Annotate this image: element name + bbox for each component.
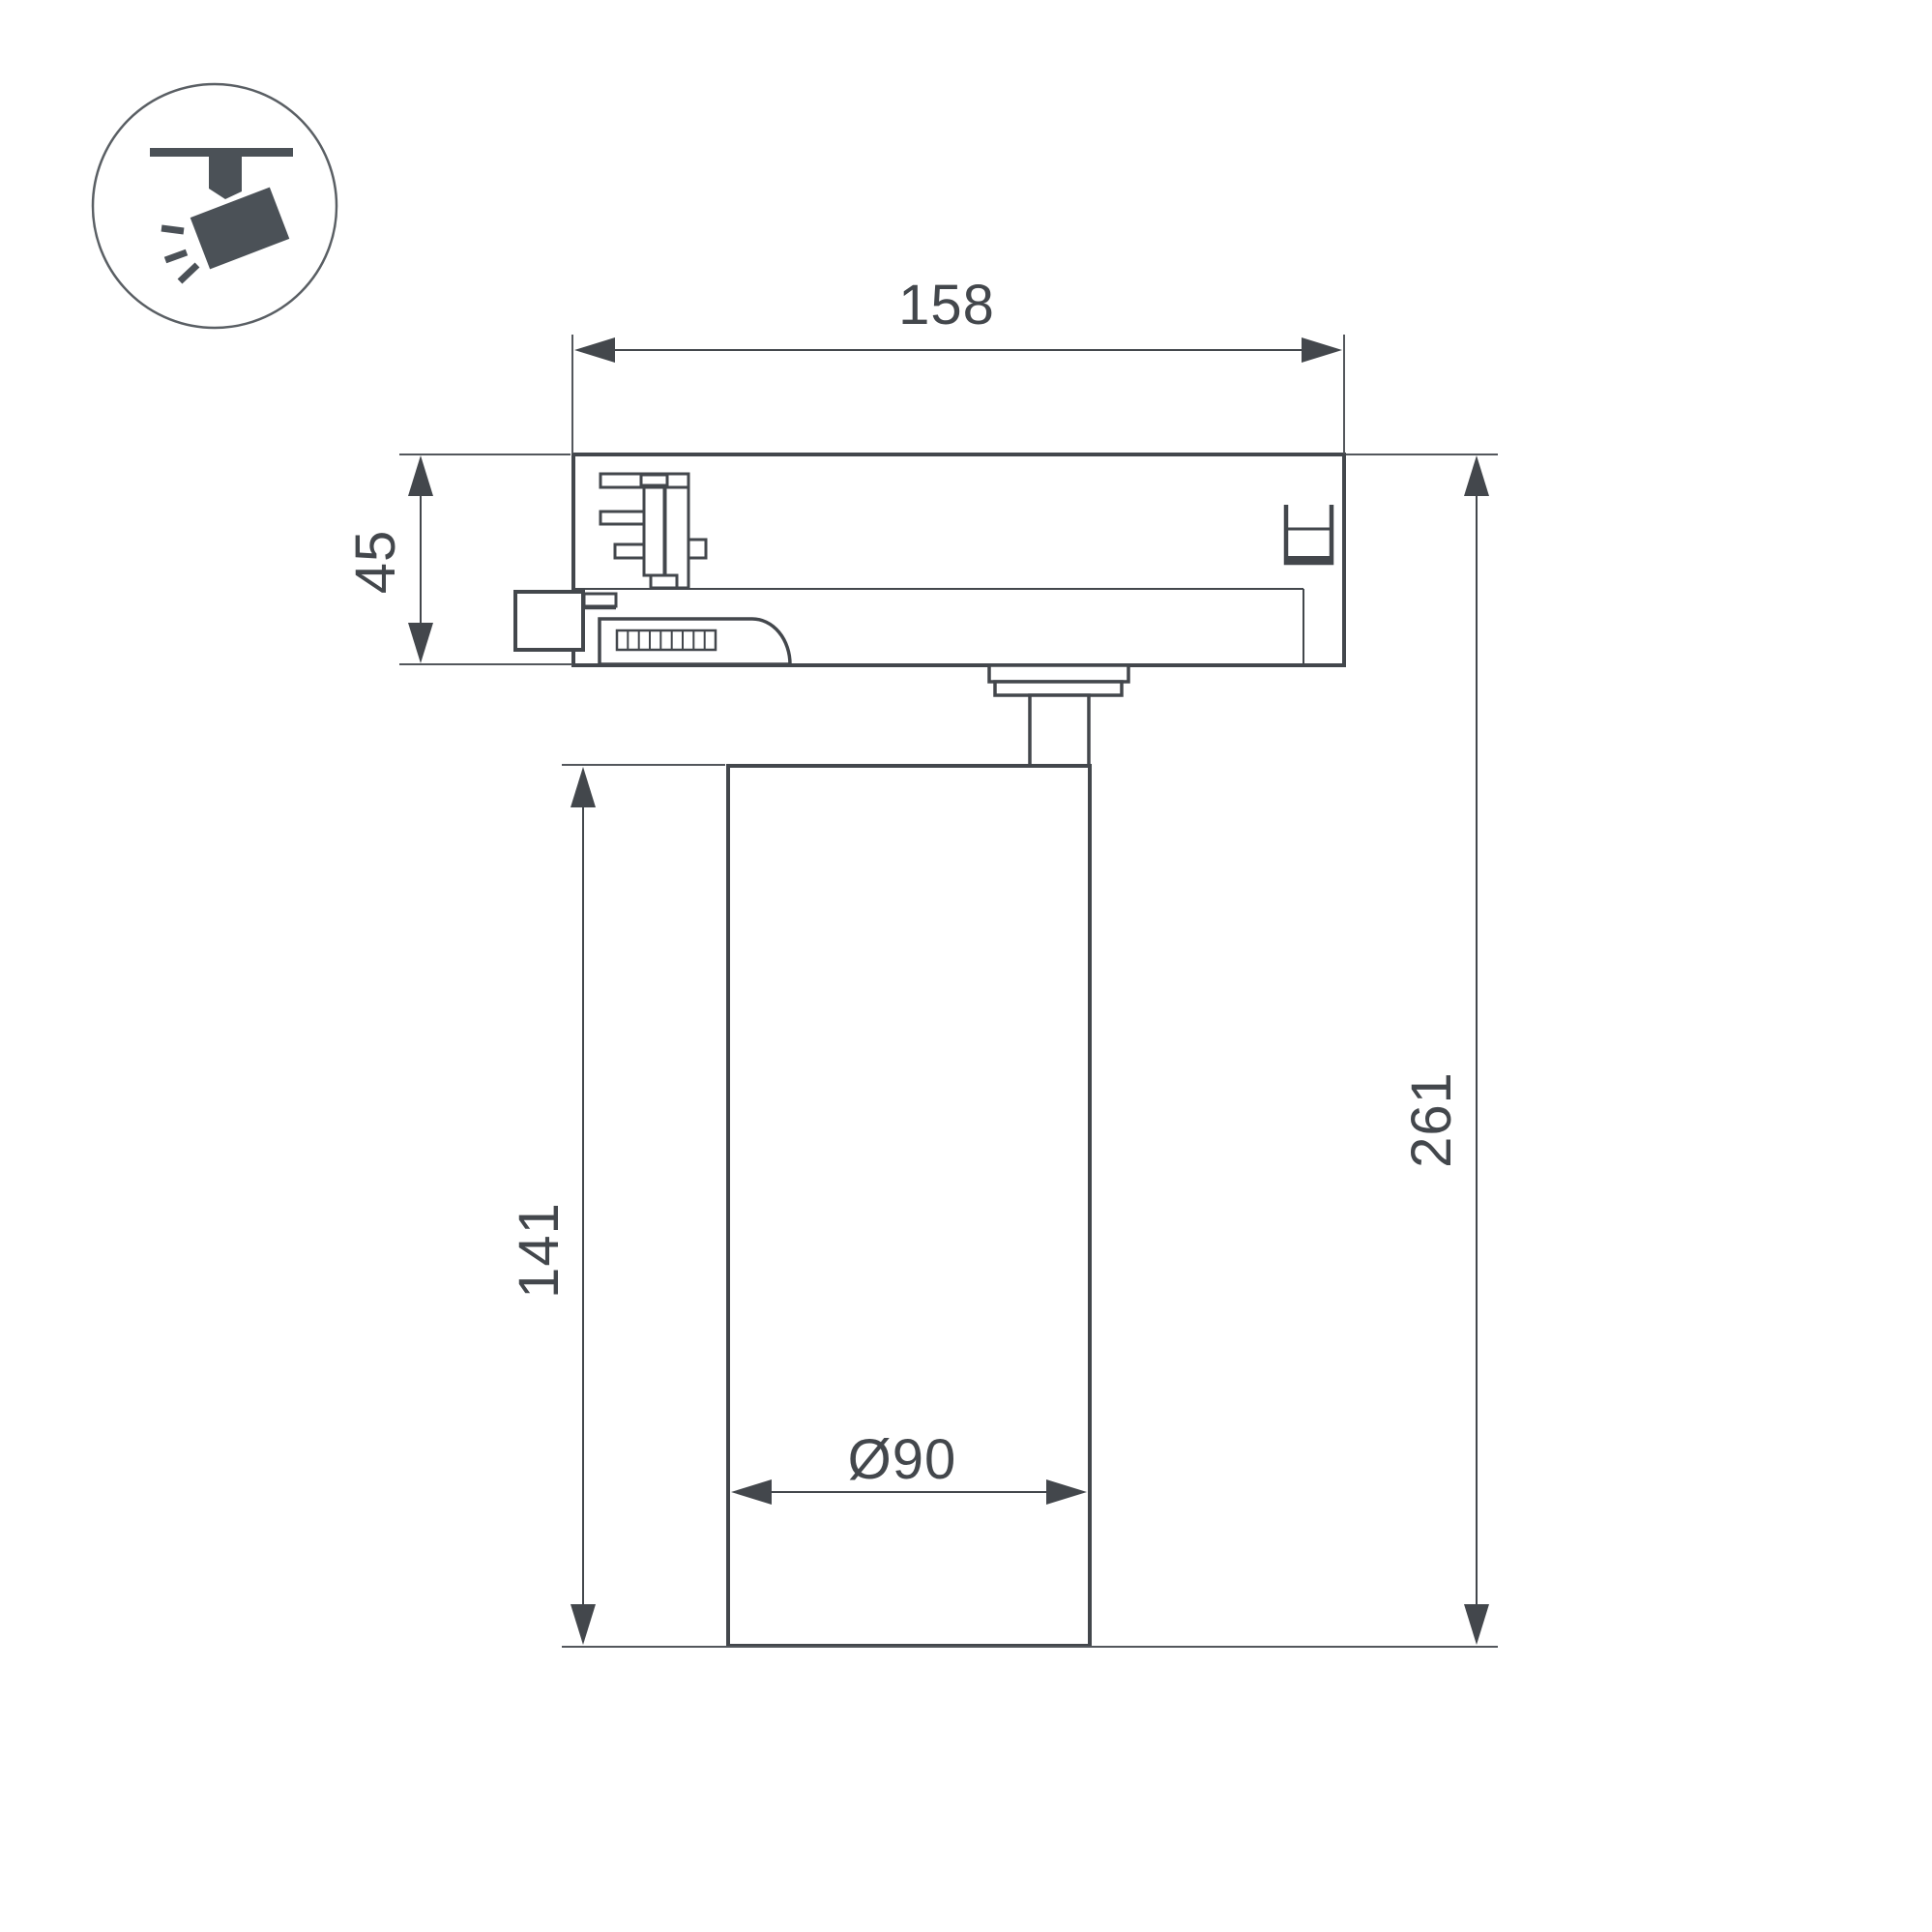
arrowhead-left xyxy=(574,337,615,363)
contact-column xyxy=(665,487,688,588)
contact-foot xyxy=(651,575,677,588)
arrowhead-right xyxy=(1302,337,1342,363)
technical-drawing-canvas: 158 45 141 261 xyxy=(0,0,1932,1932)
dip-switch-outline xyxy=(617,630,716,650)
dim-adapter-width: 158 xyxy=(572,274,1344,454)
latch-slider xyxy=(584,594,616,606)
luminaire-body xyxy=(728,665,1128,1646)
contact-cap xyxy=(641,475,667,485)
contact-notch xyxy=(688,540,706,558)
adapter-side-latch-box xyxy=(515,592,583,650)
arrowhead-up xyxy=(408,455,433,496)
technical-drawing-page: 158 45 141 261 xyxy=(0,0,1932,1932)
contact-pin xyxy=(644,487,664,575)
dim-label-adapter-height: 45 xyxy=(344,530,407,595)
mount-flange-lower xyxy=(995,682,1122,695)
dip-switch-block xyxy=(617,630,716,650)
dim-total-height: 261 xyxy=(1346,454,1498,1645)
dim-label-body-diameter: Ø90 xyxy=(848,1428,957,1491)
track-spotlight-icon xyxy=(93,84,337,328)
icon-circle xyxy=(93,84,337,328)
contact-bar-middle xyxy=(600,512,644,524)
arrowhead-up xyxy=(1464,455,1489,496)
cylinder-body xyxy=(728,766,1090,1646)
light-ray-icon xyxy=(161,228,184,231)
dim-label-adapter-width: 158 xyxy=(898,274,995,337)
dim-label-body-height: 141 xyxy=(508,1202,571,1299)
arrowhead-down xyxy=(1464,1604,1489,1645)
track-adapter xyxy=(515,454,1344,665)
icon-track-bar xyxy=(150,148,293,157)
arrowhead-down xyxy=(571,1604,596,1645)
stem xyxy=(1030,695,1089,766)
arrowhead-down xyxy=(408,623,433,663)
contact-bar-lower xyxy=(615,544,644,558)
arrowhead-up xyxy=(571,767,596,807)
mount-flange-upper xyxy=(989,665,1128,682)
dim-label-total-height: 261 xyxy=(1400,1071,1463,1168)
